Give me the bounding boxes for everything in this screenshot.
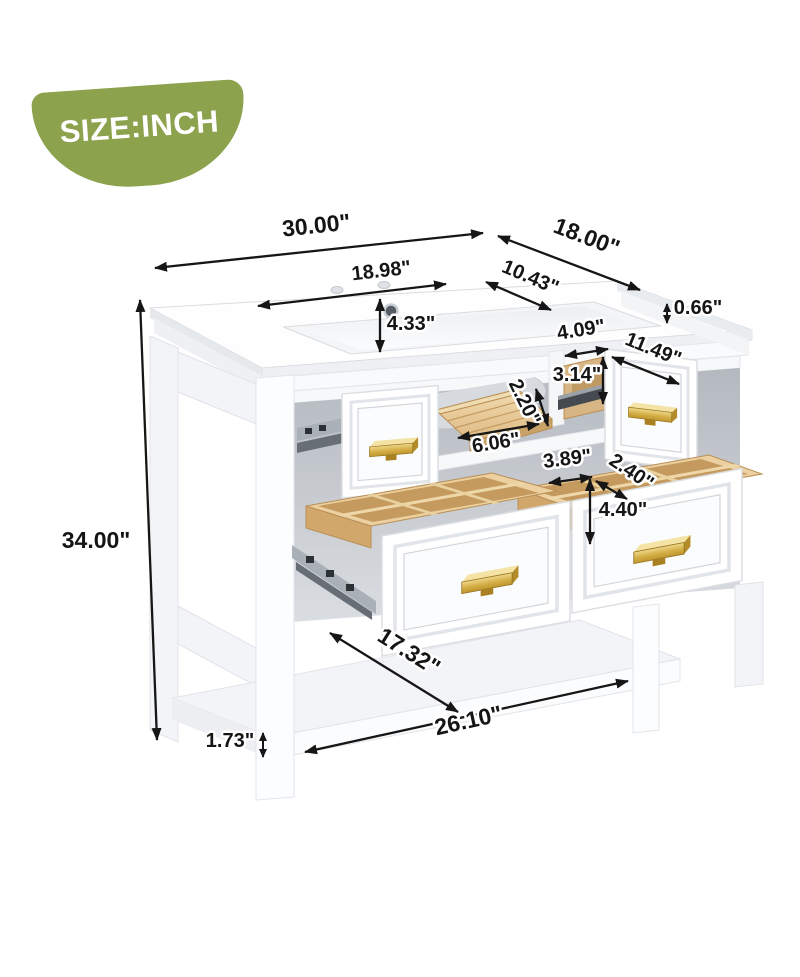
dimension-label: 34.00" [62, 527, 130, 553]
dimension-label: 4.33" [387, 313, 435, 335]
dimension-label: 18.98" [351, 257, 413, 286]
vanity-illustration: 30.00" 18.00" 34.00" 18.98" 10.43" 4.33" [0, 0, 800, 977]
dimension-label: 18.00" [550, 212, 623, 261]
center-stile [549, 350, 564, 427]
dimension-label: 0.66" [674, 297, 722, 319]
product-diagram: SIZE:INCH [0, 0, 800, 977]
dimension-arrow [155, 233, 483, 268]
right-front-leg [633, 604, 659, 733]
right-back-leg [735, 582, 763, 687]
dimension-label: 4.40" [599, 499, 647, 521]
dimension-label: 1.73" [206, 730, 254, 752]
faucet-hole [378, 282, 390, 289]
dimension-overall-height: 34.00" [62, 300, 157, 740]
dimension-label: 30.00" [281, 209, 352, 242]
dimension-label: 3.14" [553, 364, 601, 386]
left-front-leg [256, 375, 294, 800]
left-side-frame [150, 336, 256, 742]
dimension-overall-width: 30.00" [155, 209, 483, 268]
faucet-hole [331, 287, 343, 294]
